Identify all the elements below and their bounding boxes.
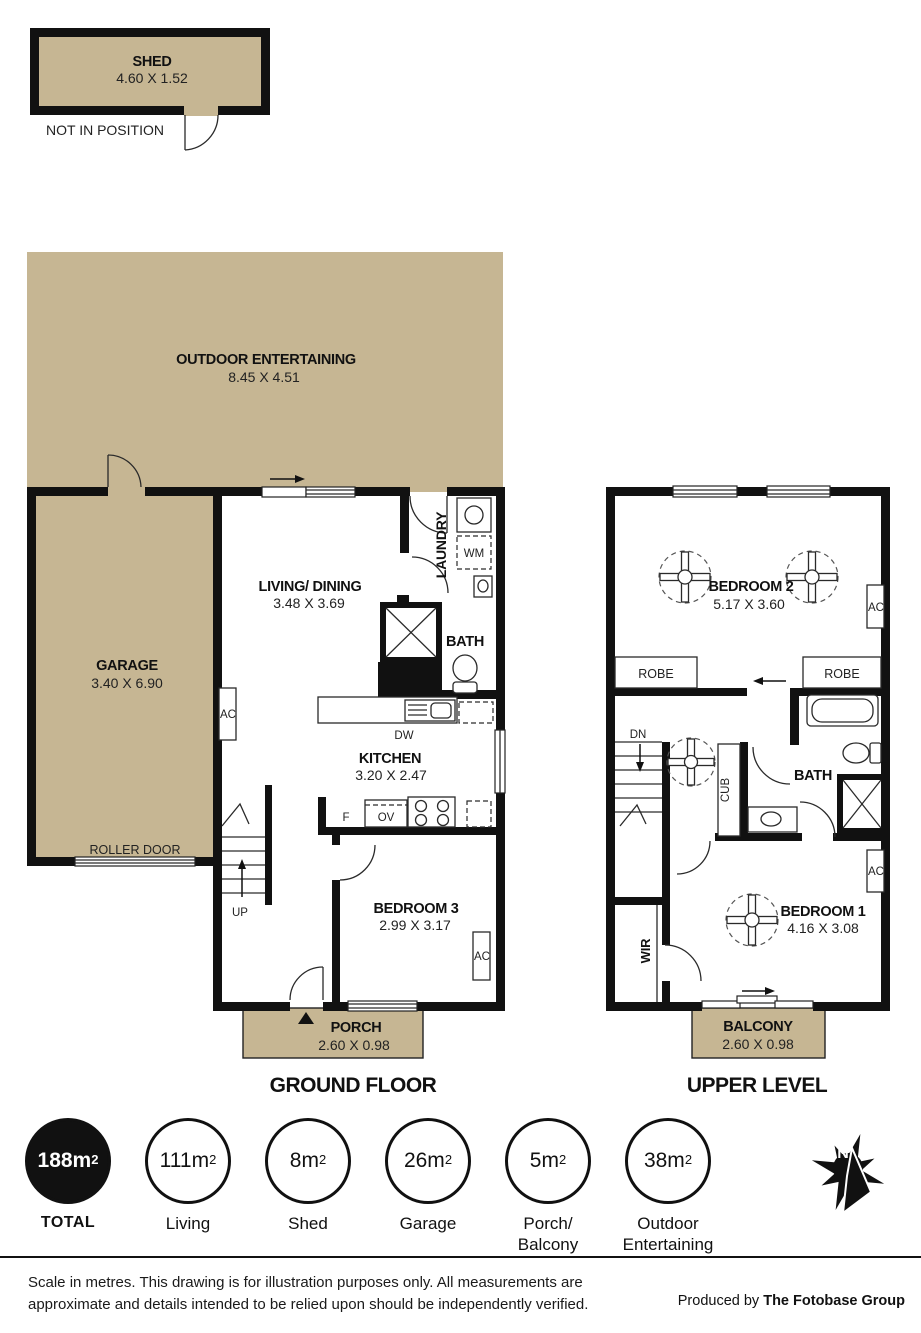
wall — [27, 857, 75, 866]
area-label: OutdoorEntertaining — [608, 1213, 728, 1256]
living-label: LIVING/ DINING — [259, 579, 362, 595]
sink-bowl — [431, 703, 451, 718]
wall — [615, 688, 747, 696]
disclaimer-line: Scale in metres. This drawing is for ill… — [28, 1272, 588, 1294]
outdoor-dims: 8.45 X 4.51 — [228, 369, 300, 385]
ac-unit: AC — [867, 850, 884, 892]
laundry-label: LAUNDRY — [433, 511, 449, 578]
garage-dims: 3.40 X 6.90 — [91, 675, 163, 691]
area-label: TOTAL — [8, 1213, 128, 1233]
wall — [662, 981, 670, 1002]
wall — [145, 487, 222, 496]
wall — [332, 880, 340, 1002]
shed-door-gap — [184, 104, 218, 116]
area-label: Shed — [248, 1213, 368, 1234]
ac-unit: AC — [473, 932, 490, 980]
stairs-down: DN — [615, 729, 662, 826]
walk-in-robe: WIR — [638, 905, 657, 1002]
bathtub — [807, 695, 878, 726]
legend-item-living: 111m2 Living — [128, 1118, 248, 1234]
toilet — [453, 655, 477, 693]
cupboard: CUB — [718, 744, 740, 836]
ground-floor-title: GROUND FLOOR — [270, 1074, 437, 1097]
floorplan-page: SHED 4.60 X 1.52 NOT IN POSITION OUTDOOR… — [0, 0, 921, 1333]
wall — [790, 696, 799, 745]
balcony-arrow-head — [765, 987, 775, 995]
wall — [265, 785, 272, 905]
robe-label: ROBE — [824, 667, 859, 681]
laundry-trough — [457, 498, 491, 532]
balcony-label: BALCONY — [723, 1019, 793, 1035]
wall — [833, 833, 881, 841]
up-arrow — [238, 859, 246, 869]
wall — [27, 487, 36, 866]
area-unit-sup: 2 — [559, 1152, 566, 1167]
wir-door-arc — [665, 945, 701, 981]
area-value: 188m — [38, 1149, 92, 1173]
window — [306, 487, 355, 497]
washing-machine: WM — [457, 536, 491, 569]
legend-item-outdoor: 38m2 OutdoorEntertaining — [608, 1118, 728, 1256]
bedroom1-label: BEDROOM 1 — [780, 904, 865, 920]
robe-left: ROBE — [615, 657, 697, 688]
garage-label: GARAGE — [96, 658, 158, 674]
wall — [813, 1002, 890, 1011]
stairs-up: UP — [222, 804, 265, 919]
wall — [332, 827, 340, 845]
kitchen-window — [495, 730, 505, 793]
wall — [213, 487, 263, 496]
disclaimer-text: Scale in metres. This drawing is for ill… — [28, 1272, 588, 1316]
ceiling-fan — [726, 894, 778, 946]
robe-right: ROBE — [803, 657, 881, 688]
porch-dims: 2.60 X 0.98 — [318, 1037, 390, 1053]
ac-label: AC — [474, 951, 490, 963]
wall — [606, 487, 673, 496]
oven-label: OV — [378, 812, 395, 824]
vanity — [748, 807, 797, 832]
bath-lower-door-arc — [800, 802, 835, 837]
roller-door — [75, 857, 195, 866]
footer-divider — [0, 1256, 921, 1258]
pantry — [467, 801, 491, 827]
area-circle: 8m2 — [265, 1118, 351, 1204]
bedroom3-door-arc — [340, 845, 375, 880]
ac-label: AC — [220, 709, 236, 721]
bedroom2-entry-arrow-head — [753, 677, 763, 685]
stair-break-line — [222, 804, 249, 826]
shower — [383, 605, 439, 660]
area-circle: 5m2 — [505, 1118, 591, 1204]
up-label: UP — [232, 907, 248, 919]
window — [767, 486, 830, 497]
area-unit-sup: 2 — [445, 1152, 452, 1167]
wall — [213, 1002, 290, 1011]
wall — [606, 1002, 702, 1011]
area-circle: 188m2 — [25, 1118, 111, 1204]
cooktop — [408, 797, 455, 827]
bedroom3-label: BEDROOM 3 — [373, 901, 458, 917]
bedroom1-dims: 4.16 X 3.08 — [787, 920, 859, 936]
bedroom2-dims: 5.17 X 3.60 — [713, 596, 785, 612]
kitchen-label: KITCHEN — [359, 751, 421, 767]
area-label: Porch/Balcony — [488, 1213, 608, 1256]
wall — [737, 487, 767, 496]
area-circle: 26m2 — [385, 1118, 471, 1204]
living-dims: 3.48 X 3.69 — [273, 595, 345, 611]
wm-label: WM — [464, 548, 484, 560]
wall — [417, 1002, 505, 1011]
ac-unit: AC — [867, 585, 884, 628]
upper-level-title: UPPER LEVEL — [687, 1074, 828, 1097]
wall — [378, 662, 442, 692]
area-label: Garage — [368, 1213, 488, 1234]
toilet — [843, 743, 881, 763]
bath-door-arc — [753, 747, 790, 784]
stair-break-line — [620, 805, 646, 826]
roller-door-label: ROLLER DOOR — [90, 843, 181, 857]
wall — [213, 866, 222, 1011]
wall — [400, 496, 409, 553]
area-unit-sup: 2 — [685, 1152, 692, 1167]
kitchen-dims: 3.20 X 2.47 — [355, 767, 427, 783]
wall — [881, 487, 890, 1011]
fridge-label: F — [342, 812, 349, 824]
outdoor-label: OUTDOOR ENTERTAINING — [176, 352, 356, 368]
kitchen-bench — [318, 697, 457, 723]
bath-label: BATH — [794, 768, 832, 784]
area-unit-sup: 2 — [319, 1152, 326, 1167]
wall — [353, 487, 410, 496]
area-value: 5m — [530, 1149, 559, 1173]
bedroom3-window — [348, 1001, 417, 1011]
wall — [27, 487, 108, 496]
shed-plan: SHED 4.60 X 1.52 NOT IN POSITION — [35, 33, 266, 151]
oven: OV — [365, 800, 407, 827]
cub-label: CUB — [720, 778, 732, 803]
dn-label: DN — [630, 729, 647, 741]
shower — [840, 777, 884, 831]
outdoor-entertaining-area: OUTDOOR ENTERTAINING 8.45 X 4.51 — [27, 252, 503, 492]
bedroom3-dims: 2.99 X 3.17 — [379, 917, 451, 933]
legend-item-total: 188m2 TOTAL — [8, 1118, 128, 1233]
legend-item-shed: 8m2 Shed — [248, 1118, 368, 1234]
wall — [323, 1002, 348, 1011]
porch-label: PORCH — [331, 1020, 382, 1036]
front-door — [290, 967, 323, 1000]
ceiling-fan — [667, 738, 715, 786]
disclaimer-line: approximate and details intended to be r… — [28, 1294, 588, 1316]
upper-level-plan: ROBE ROBE DN CUB — [606, 486, 890, 1097]
area-legend: 188m2 TOTAL 111m2 Living 8m2 Shed 26m2 G… — [0, 1118, 921, 1258]
area-circle: 38m2 — [625, 1118, 711, 1204]
area-circle: 111m2 — [145, 1118, 231, 1204]
balcony-dims: 2.60 X 0.98 — [722, 1036, 794, 1052]
wall — [496, 793, 505, 1011]
legend-item-porch-balcony: 5m2 Porch/Balcony — [488, 1118, 608, 1256]
shed-dims: 4.60 X 1.52 — [116, 70, 188, 86]
bath-label: BATH — [446, 634, 484, 650]
door-arc — [185, 115, 218, 150]
produced-by-text: Produced by — [678, 1293, 759, 1309]
area-value: 111m — [160, 1149, 209, 1173]
ground-floor-plan: UP WM LAUNDRY BATH — [27, 455, 505, 1097]
wir-label: WIR — [638, 938, 653, 963]
wall — [318, 827, 505, 835]
shed-label: SHED — [132, 54, 171, 70]
ac-label: AC — [868, 866, 884, 878]
wall — [606, 897, 663, 905]
hall-door-arc — [677, 841, 710, 874]
wall — [496, 487, 505, 730]
area-value: 8m — [290, 1149, 319, 1173]
wall — [213, 487, 222, 866]
area-value: 26m — [404, 1149, 445, 1173]
legend-item-garage: 26m2 Garage — [368, 1118, 488, 1234]
area-label: Living — [128, 1213, 248, 1234]
bedroom2-label: BEDROOM 2 — [708, 579, 793, 595]
ac-unit: AC — [219, 688, 236, 740]
robe-label: ROBE — [638, 667, 673, 681]
producer-credit: Produced by The Fotobase Group — [678, 1293, 905, 1309]
wall — [740, 742, 748, 841]
dishwasher — [459, 702, 493, 723]
shed-note: NOT IN POSITION — [46, 122, 164, 138]
window — [673, 486, 737, 497]
ac-label: AC — [868, 602, 884, 614]
bath-vanity — [474, 576, 492, 597]
area-value: 38m — [644, 1149, 685, 1173]
ceiling-fan — [786, 551, 838, 603]
ceiling-fan — [659, 551, 711, 603]
area-unit-sup: 2 — [91, 1152, 98, 1167]
sliding-door-panel — [262, 487, 306, 497]
dw-label: DW — [394, 730, 413, 742]
wall — [606, 487, 615, 1011]
producer-name: The Fotobase Group — [763, 1293, 905, 1309]
area-unit-sup: 2 — [209, 1152, 216, 1167]
balcony-sliding-door — [702, 996, 813, 1008]
